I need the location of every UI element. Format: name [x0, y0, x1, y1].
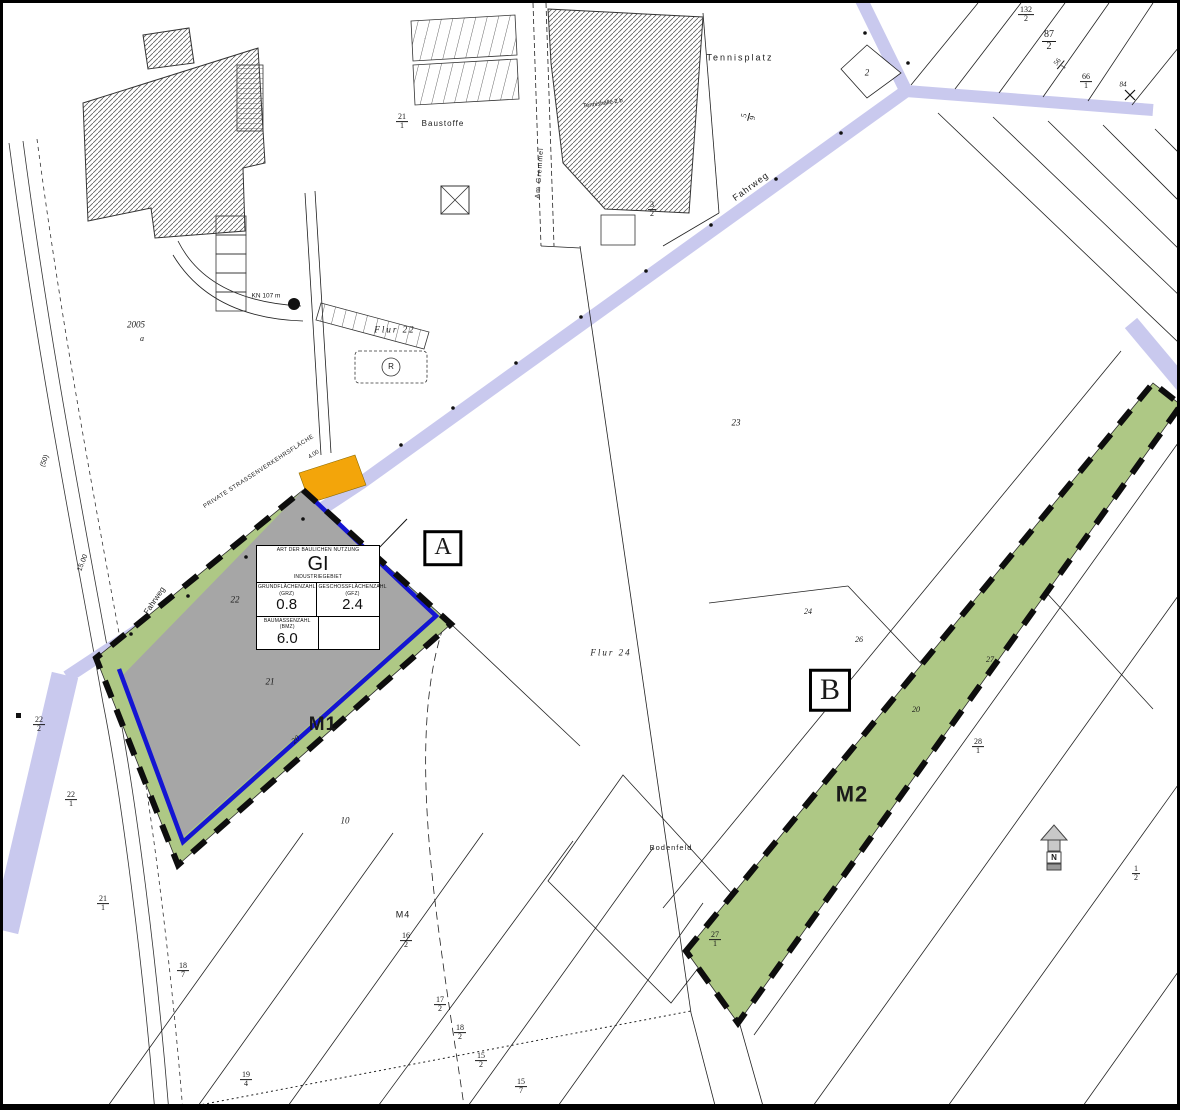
empty-cell: [318, 617, 380, 650]
stairs-strip: [237, 65, 263, 131]
transformer-box: [441, 186, 469, 214]
small-building: [143, 28, 194, 69]
zoning-info-table: ART DER BAULICHEN NUTZUNG GI INDUSTRIEGE…: [256, 545, 380, 650]
zoning-map-page: ART DER BAULICHEN NUTZUNG GI INDUSTRIEGE…: [0, 0, 1180, 1110]
buildings: [83, 9, 703, 383]
ladder-strip: [316, 303, 429, 349]
annex-building: [601, 215, 635, 245]
x-marker: [1125, 90, 1135, 100]
tennis-hall-building: [548, 9, 703, 213]
zone-m2: [686, 383, 1180, 1023]
zoning-use-block: ART DER BAULICHEN NUTZUNG GI INDUSTRIEGE…: [257, 546, 379, 582]
map-canvas: [3, 3, 1180, 1110]
gfz-cell: GESCHOSSFLÄCHENZAHL (GFZ) 2.4: [316, 583, 387, 616]
parking-row-2: [413, 59, 519, 105]
parking-row-1: [411, 15, 517, 61]
r-basin: [355, 351, 427, 383]
north-arrow: [1041, 825, 1067, 870]
bmz-cell: BAUMASSENZAHL (BMZ) 6.0: [257, 617, 318, 650]
grz-cell: GRUNDFLÄCHENZAHL (GRZ) 0.8: [257, 583, 316, 616]
use-code: GI: [259, 554, 377, 574]
kn-point: [288, 298, 300, 310]
use-subtitle: INDUSTRIEGEBIET: [259, 574, 377, 581]
